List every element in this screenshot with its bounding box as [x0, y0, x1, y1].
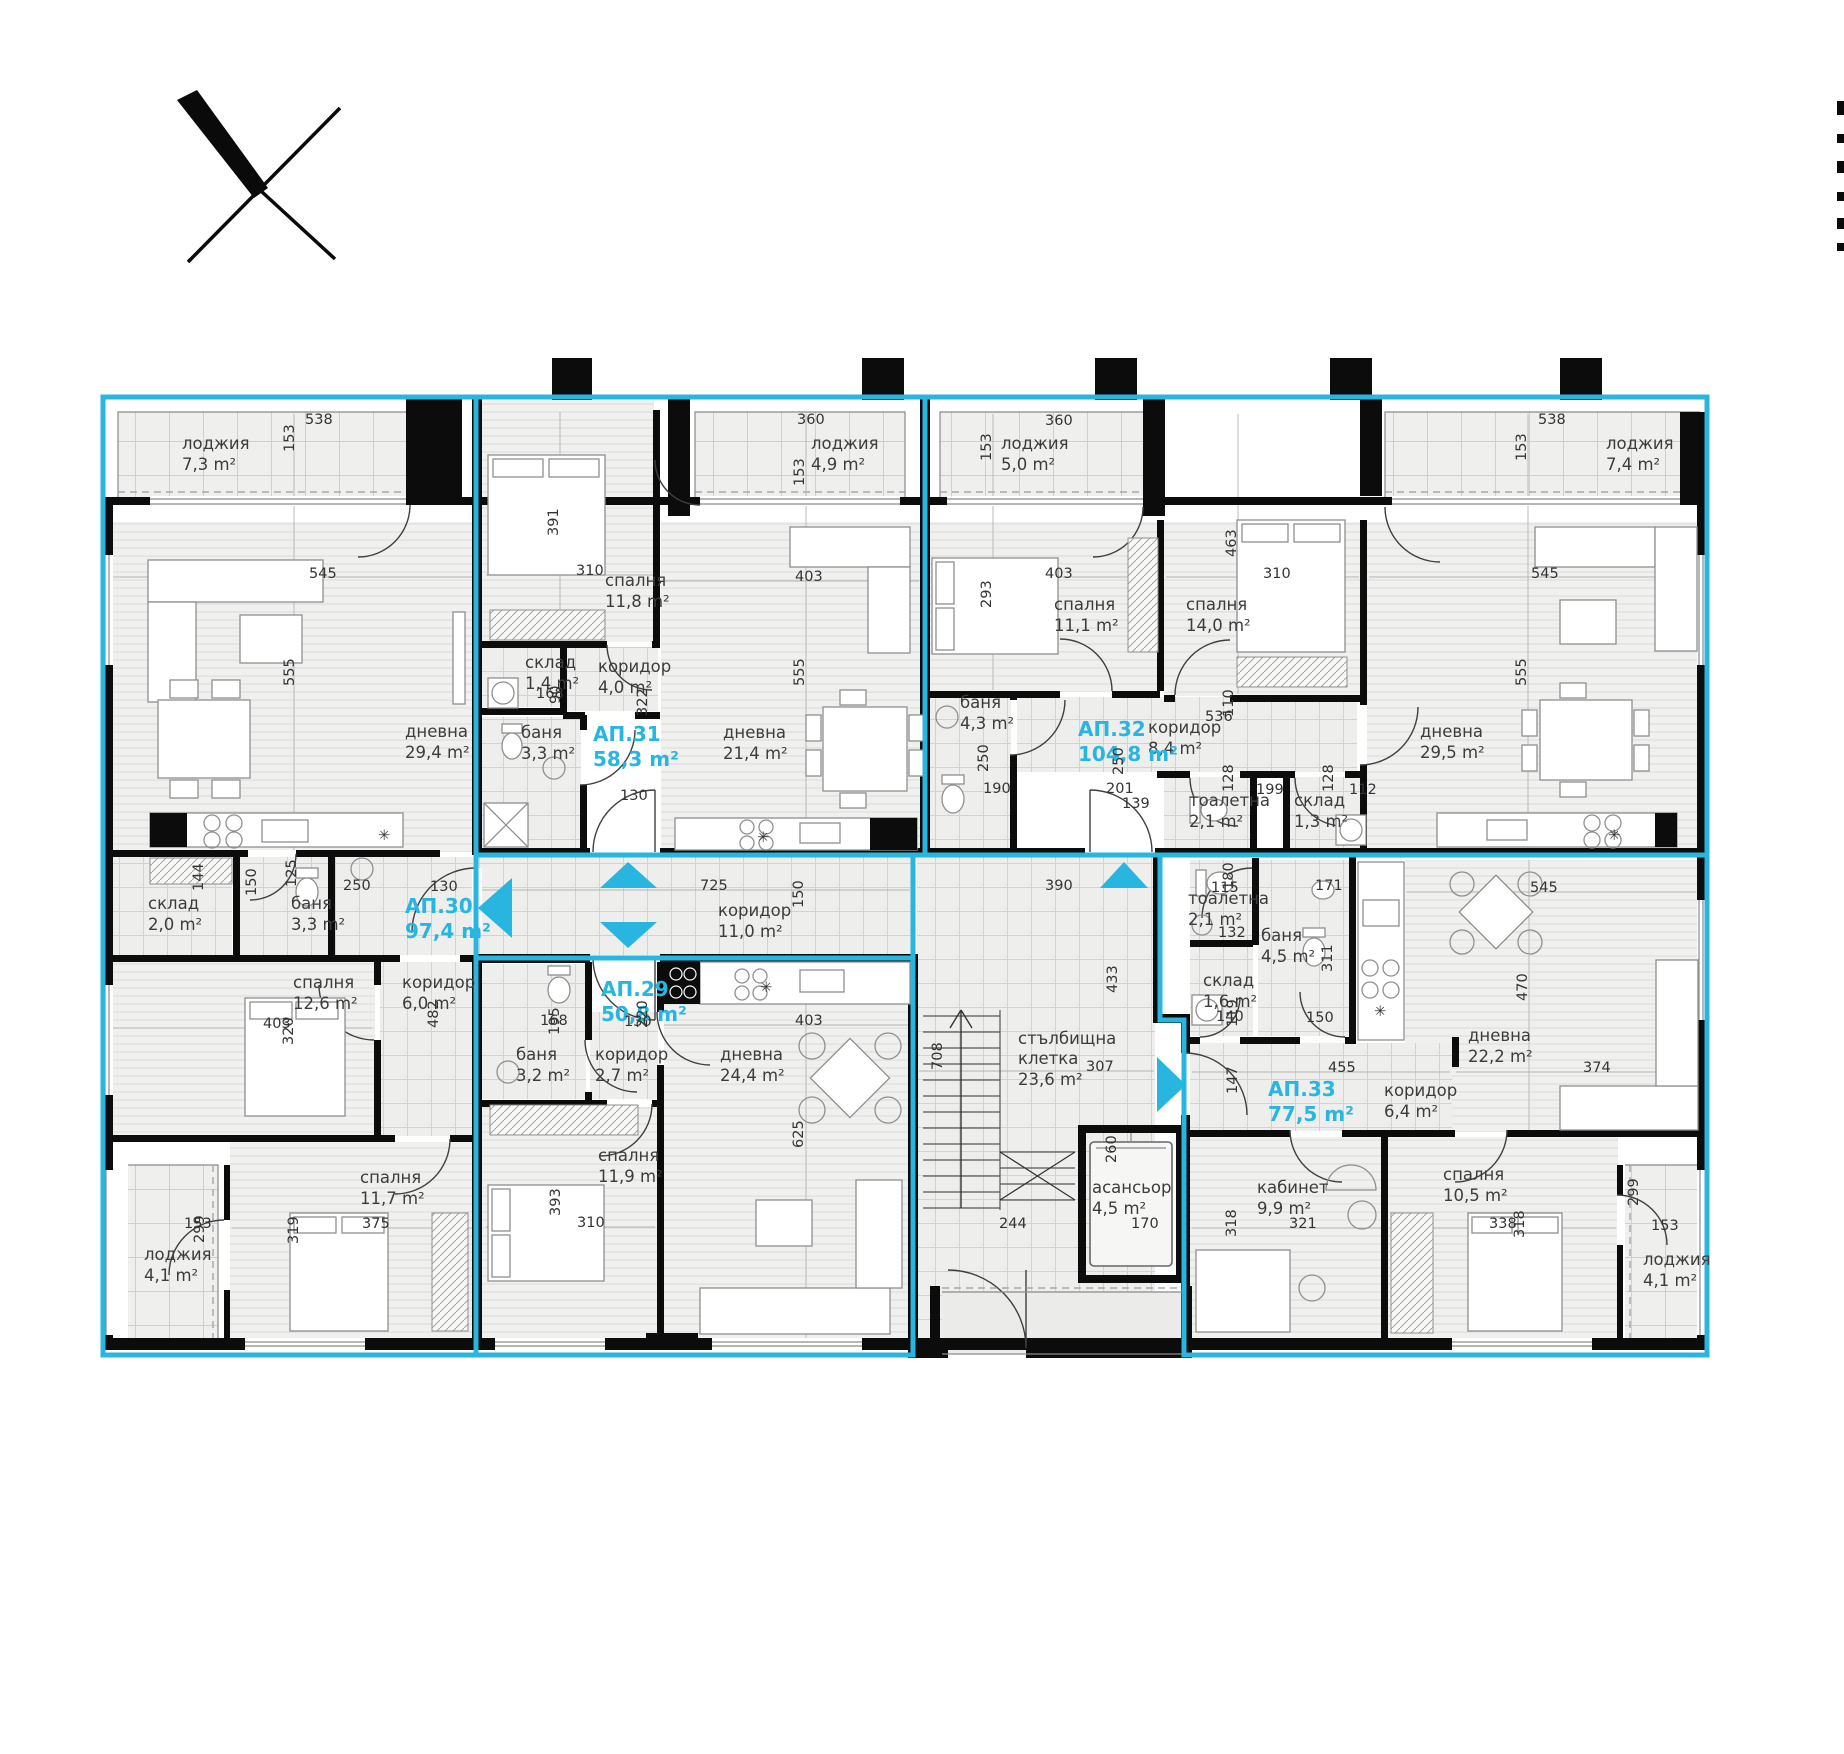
dimension-value: 708 — [930, 1042, 946, 1070]
wardrobe-ap30-117 — [432, 1213, 468, 1331]
apartment-id: АП.29 — [601, 977, 669, 1001]
room-area: 2,0 m² — [148, 915, 202, 934]
dimension-value: 538 — [305, 412, 333, 428]
dimension-value: 190 — [983, 781, 1011, 797]
dimension-value: 545 — [309, 566, 337, 582]
room-area: 7,4 m² — [1606, 455, 1660, 474]
wardrobe-ap33 — [1391, 1213, 1433, 1333]
room-name: спалня — [360, 1168, 421, 1187]
washer-ap31 — [488, 678, 518, 708]
dimension-value: 310 — [576, 563, 604, 579]
dimension-value: ✳ — [1374, 1004, 1386, 1020]
apartment-area: 58,3 m² — [593, 747, 679, 771]
floor-plan-svg: лоджия7,3 m²дневна29,4 m²склад2,0 m²баня… — [0, 0, 1844, 1754]
room-area: 11,8 m² — [605, 592, 670, 611]
room-name: склад — [148, 894, 199, 913]
room-name: коридор — [598, 657, 671, 676]
room-area: 11,9 m² — [598, 1167, 663, 1186]
wardrobe-ap31 — [490, 610, 605, 640]
dimension-value: 319 — [286, 1216, 302, 1244]
dimension-value: 299 — [1626, 1178, 1642, 1206]
dimension-value: 150 — [1306, 1010, 1334, 1026]
room-name: баня — [291, 894, 332, 913]
room-name: лоджия — [1606, 434, 1674, 453]
dimension-value: 374 — [1583, 1060, 1611, 1076]
dimension-value: 470 — [1515, 973, 1531, 1001]
room-name: лоджия — [811, 434, 879, 453]
kitchen-ap29 — [664, 962, 910, 1004]
room-area: 3,2 m² — [516, 1066, 570, 1085]
wardrobe-ap32-140 — [1237, 657, 1347, 687]
dimension-value: 555 — [1514, 658, 1530, 686]
wardrobe-ap29 — [490, 1105, 638, 1135]
room-area: 6,4 m² — [1384, 1102, 1438, 1121]
dimension-value: ✳ — [760, 980, 772, 996]
dimension-value: 310 — [577, 1215, 605, 1231]
room-area: 11,1 m² — [1054, 616, 1119, 635]
dimension-value: 90 — [548, 686, 564, 704]
dimension-value: 195 — [547, 1007, 563, 1035]
dimension-value: 110 — [1221, 689, 1237, 717]
dimension-value: 555 — [792, 658, 808, 686]
dimension-value: 139 — [1122, 796, 1150, 812]
room-name: лоджия — [182, 434, 250, 453]
dimension-value: 307 — [1086, 1059, 1114, 1075]
dimension-value: 170 — [1131, 1216, 1159, 1232]
dimension-value: 260 — [1104, 1135, 1120, 1163]
room-name: баня — [1261, 926, 1302, 945]
room-area: 4,3 m² — [960, 714, 1014, 733]
room-area: 2,1 m² — [1189, 812, 1243, 831]
dimension-value: 545 — [1530, 880, 1558, 896]
room-name: баня — [516, 1045, 557, 1064]
room-name: дневна — [1468, 1026, 1531, 1045]
dimension-value: 390 — [1045, 878, 1073, 894]
dimension-value: 147 — [1225, 1066, 1241, 1094]
dimension-value: 321 — [1289, 1216, 1317, 1232]
dimension-value: ✳ — [757, 830, 769, 846]
dimension-value: 244 — [999, 1216, 1027, 1232]
dimension-value: 112 — [1349, 782, 1377, 798]
room-name: склад — [1294, 791, 1345, 810]
dimension-value: 150 — [244, 868, 260, 896]
room-name: спалня — [598, 1146, 659, 1165]
dimension-value: 250 — [343, 878, 371, 894]
dimension-value: 128 — [1221, 764, 1237, 792]
apartment-area: 77,5 m² — [1268, 1102, 1354, 1126]
dimension-value: 153 — [1651, 1218, 1679, 1234]
room-area: 29,5 m² — [1420, 743, 1485, 762]
dimension-value: 318 — [1224, 1209, 1240, 1237]
dimension-value: 545 — [1531, 566, 1559, 582]
dimension-value: ✳ — [378, 828, 390, 844]
dimension-value: 403 — [795, 1013, 823, 1029]
dimension-value: 132 — [1218, 925, 1246, 941]
bed-ap29 — [488, 1185, 604, 1281]
dimension-value: ✳ — [1608, 828, 1620, 844]
room-name: спалня — [605, 571, 666, 590]
apartment-id: АП.31 — [593, 722, 661, 746]
room-area: 4,1 m² — [144, 1266, 198, 1285]
room-area: 10,5 m² — [1443, 1186, 1508, 1205]
apartment-id: АП.30 — [405, 894, 473, 918]
dimension-value: 375 — [362, 1216, 390, 1232]
room-name: дневна — [1420, 722, 1483, 741]
dimension-value: 201 — [1106, 781, 1134, 797]
dimension-value: 311 — [1320, 944, 1336, 972]
dimension-value: 391 — [546, 508, 562, 536]
bed-ap32-111 — [932, 558, 1058, 654]
dimension-value: 625 — [791, 1120, 807, 1148]
apartment-id: АП.32 — [1078, 717, 1146, 741]
room-area: 11,0 m² — [718, 922, 783, 941]
dimension-value: 360 — [797, 412, 825, 428]
dimension-value: 360 — [1045, 413, 1073, 429]
dimension-value: 153 — [979, 433, 995, 461]
room-name: дневна — [723, 723, 786, 742]
room-name: асансьор — [1092, 1178, 1171, 1197]
kitchen-ap30 — [150, 813, 403, 848]
dimension-value: 463 — [1224, 529, 1240, 557]
kitchen-ap32 — [1437, 813, 1677, 848]
room-name: коридор — [595, 1045, 668, 1064]
room-area: 11,7 m² — [360, 1189, 425, 1208]
room-area: 12,6 m² — [293, 994, 358, 1013]
dimension-value: 393 — [548, 1188, 564, 1216]
dimension-value: 403 — [1045, 566, 1073, 582]
room-name: лоджия — [1001, 434, 1069, 453]
kitchen-ap31 — [675, 818, 917, 850]
dimension-value: 322 — [635, 688, 651, 716]
room-name: кабинет — [1257, 1178, 1329, 1197]
room-area: 3,3 m² — [291, 915, 345, 934]
dimension-value: 299 — [192, 1215, 208, 1243]
dimension-value: 455 — [1328, 1060, 1356, 1076]
room-name: спалня — [1054, 595, 1115, 614]
room-area: 1,3 m² — [1294, 812, 1348, 831]
room-name: склад — [1203, 971, 1254, 990]
room-name: баня — [960, 693, 1001, 712]
dimension-value: 128 — [1321, 764, 1337, 792]
room-name: лоджия — [1643, 1250, 1711, 1269]
room-area: 29,4 m² — [405, 743, 470, 762]
room-area: 4,9 m² — [811, 455, 865, 474]
apartment-area: 97,4 m² — [405, 919, 491, 943]
dimension-value: 725 — [700, 878, 728, 894]
dimension-value: 180 — [1221, 862, 1237, 890]
wardrobe-ap32-111 — [1128, 538, 1158, 652]
dimension-value: 220 — [635, 1000, 651, 1028]
dimension-value: 130 — [620, 788, 648, 804]
room-name: спалня — [293, 973, 354, 992]
dimension-value: 153 — [282, 424, 298, 452]
dimension-value: 293 — [979, 580, 995, 608]
room-area: 7,3 m² — [182, 455, 236, 474]
room-area: 22,2 m² — [1468, 1047, 1533, 1066]
room-area: 23,6 m² — [1018, 1070, 1083, 1089]
bed-ap32-140 — [1237, 520, 1345, 652]
dimension-value: 538 — [1538, 412, 1566, 428]
dimension-value: 250 — [1111, 747, 1127, 775]
dimension-value: 403 — [795, 569, 823, 585]
room-name: клетка — [1018, 1049, 1078, 1068]
room-area: 14,0 m² — [1186, 616, 1251, 635]
dining-ap32 — [1522, 683, 1649, 797]
dining-ap31 — [806, 690, 924, 808]
dimension-value: 130 — [430, 879, 458, 895]
room-area: 2,7 m² — [595, 1066, 649, 1085]
dimension-value: 320 — [281, 1017, 297, 1045]
room-area: 4,5 m² — [1261, 947, 1315, 966]
dimension-value: 433 — [1105, 965, 1121, 993]
room-area: 3,3 m² — [521, 744, 575, 763]
dimension-value: 153 — [792, 458, 808, 486]
dimension-value: 150 — [791, 880, 807, 908]
apartment-area: 104,8 m² — [1078, 742, 1178, 766]
room-name: спалня — [1443, 1165, 1504, 1184]
dimension-value: 555 — [282, 658, 298, 686]
room-name: стълбищна — [1018, 1029, 1116, 1048]
room-name: дневна — [720, 1045, 783, 1064]
room-name: коридор — [402, 973, 475, 992]
dimension-value: 199 — [1256, 782, 1284, 798]
tv-shelf-ap30 — [453, 612, 465, 704]
dimension-value: 482 — [426, 1000, 442, 1028]
room-name: коридор — [718, 901, 791, 920]
room-name: лоджия — [144, 1245, 212, 1264]
dimension-value: 119 — [1225, 999, 1241, 1027]
dimension-value: 250 — [976, 744, 992, 772]
bed-ap30-126 — [245, 998, 345, 1116]
dimension-value: 125 — [284, 859, 300, 887]
room-area: 21,4 m² — [723, 744, 788, 763]
room-name: дневна — [405, 722, 468, 741]
room-area: 5,0 m² — [1001, 455, 1055, 474]
room-name: коридор — [1384, 1081, 1457, 1100]
dimension-value: 153 — [1514, 433, 1530, 461]
dimension-value: 310 — [1263, 566, 1291, 582]
room-area: 4,1 m² — [1643, 1271, 1697, 1290]
room-name: склад — [525, 653, 576, 672]
dimension-value: 144 — [191, 863, 207, 891]
room-name: баня — [521, 723, 562, 742]
room-name: спалня — [1186, 595, 1247, 614]
apartment-id: АП.33 — [1268, 1077, 1336, 1101]
dimension-value: 318 — [1512, 1210, 1528, 1238]
room-area: 24,4 m² — [720, 1066, 785, 1085]
dimension-value: 171 — [1315, 878, 1343, 894]
